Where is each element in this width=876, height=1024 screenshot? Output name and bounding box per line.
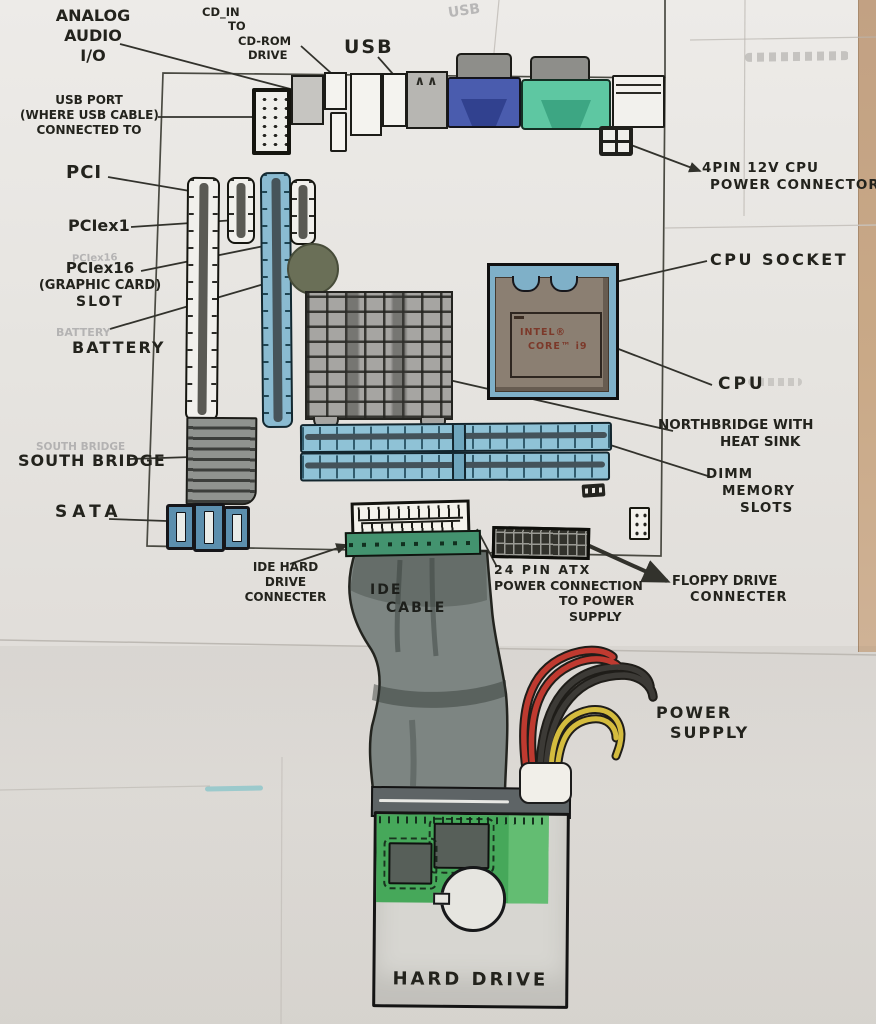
teal-port-inner	[541, 100, 591, 128]
ghost-text: BATTERY	[56, 326, 111, 339]
label-atx-power: 24 PIN ATX POWER CONNECTION TO POWER SUP…	[494, 562, 643, 625]
label-line: PCIex1	[68, 216, 130, 236]
label-line: IDE HARD	[238, 560, 333, 575]
4pin-cell	[618, 130, 630, 140]
hdd-power-connector	[519, 762, 572, 804]
sata-port-1	[166, 504, 195, 550]
label-line: CPU	[718, 374, 766, 395]
cpu-socket: INTEL® CORE™ i9	[487, 263, 619, 400]
label-line: SOUTH BRIDGE	[18, 451, 166, 471]
hdd-pcb-light-strip	[508, 815, 549, 903]
label-line: I/O	[38, 46, 148, 66]
crease-left-bottom	[0, 786, 210, 790]
vga-port-inner	[461, 99, 507, 126]
hand-drawn-motherboard-diagram: ∧∧ INTEL®	[0, 0, 876, 1024]
crease-right-2	[690, 37, 876, 40]
leader-pci	[108, 177, 190, 191]
ghost-text: SOUTH BRIDGE	[36, 441, 125, 453]
usb-stack-port: ∧∧	[406, 71, 448, 129]
leader-cd-in	[301, 46, 331, 73]
label-line: CONNECTER	[238, 590, 333, 605]
label-line: HEAT SINK	[658, 434, 813, 451]
hdd-cache-chip	[388, 842, 432, 884]
io-port-white	[612, 75, 665, 128]
pciex16-slot	[260, 172, 293, 428]
ghost-battery: BATTERY	[56, 326, 111, 339]
label-line: (GRAPHIC CARD)	[30, 278, 170, 294]
leader-cpu-power	[631, 145, 700, 171]
hdd-bar-highlight	[379, 799, 509, 803]
io-port-a	[350, 73, 382, 136]
label-line: DRIVE	[238, 575, 333, 590]
vga-port	[447, 77, 521, 128]
slot-bar	[234, 179, 248, 242]
label-line: CONNECTED TO	[20, 123, 158, 138]
hdd-spindle-notch	[433, 893, 450, 905]
ghost-pciex16: PCIex16	[72, 252, 118, 265]
label-line: POWER CONNECTOR	[702, 177, 876, 194]
front-panel-header	[629, 507, 650, 540]
label-line: SATA	[55, 502, 123, 523]
io-port-b	[382, 73, 407, 127]
label-line: POWER CONNECTION	[494, 578, 643, 594]
hard-drive: HARD DRIVE	[372, 811, 570, 1009]
label-line: USB	[344, 36, 394, 60]
label-line: FLOPPY DRIVE	[672, 574, 788, 590]
cpu-power-4pin-connector	[599, 126, 633, 156]
4pin-cell	[603, 130, 615, 140]
label-line: CPU SOCKET	[710, 250, 848, 270]
label-line: AUDIO	[38, 26, 148, 46]
label-line: USB PORT	[20, 93, 158, 108]
label-line: CONNECTER	[672, 590, 788, 606]
slot-bar	[192, 179, 213, 419]
jumper-connector	[582, 483, 606, 498]
label-northbridge: NORTHBRIDGE WITH HEAT SINK	[658, 417, 813, 451]
label-line: IDE	[370, 582, 446, 600]
label-line: PCI	[66, 162, 102, 185]
label-usb: USB	[344, 36, 394, 60]
label-line: MEMORY	[706, 483, 795, 500]
power-wires	[524, 650, 653, 773]
cpu-marking-line2: CORE™ i9	[520, 340, 588, 354]
teal-port	[521, 79, 611, 130]
label-line: ANALOG	[38, 6, 148, 26]
label-cpu: CPU	[718, 374, 766, 395]
cpu-die-mark	[514, 316, 524, 319]
io-notch	[330, 112, 347, 152]
io-port-white-line2	[616, 92, 661, 94]
crease-right-1	[665, 225, 876, 228]
label-power-supply: POWER SUPPLY	[656, 703, 749, 743]
dimm-slot-2	[300, 451, 610, 481]
hard-drive-label: HARD DRIVE	[375, 968, 565, 992]
short-slot-2	[290, 179, 316, 245]
label-analog-audio: ANALOG AUDIO I/O	[38, 6, 148, 66]
label-line: 4PIN 12V CPU	[702, 160, 876, 177]
label-line: SUPPLY	[656, 723, 749, 743]
jumper-pins	[585, 487, 602, 493]
label-pci: PCI	[66, 162, 102, 185]
label-floppy: FLOPPY DRIVE CONNECTER	[672, 574, 788, 607]
cpu-die-outline: INTEL® CORE™ i9	[510, 312, 602, 378]
label-line: BATTERY	[72, 338, 166, 358]
hard-drive-text: HARD DRIVE	[375, 968, 565, 992]
slot-bar	[297, 181, 309, 243]
label-line: NORTHBRIDGE WITH	[658, 417, 813, 434]
ribbon-streak-3	[412, 720, 414, 786]
ghost-southbridge: SOUTH BRIDGE	[36, 441, 125, 453]
atx-24pin-connector	[492, 526, 591, 560]
ghost-text: PCIex16	[72, 252, 118, 265]
label-line: CD_IN	[202, 5, 291, 19]
label-cpu-socket: CPU SOCKET	[710, 250, 848, 270]
label-ide-connector: IDE HARD DRIVE CONNECTER	[238, 560, 333, 605]
leader-pciex1	[131, 220, 236, 227]
label-line: TO POWER	[494, 593, 643, 609]
label-usb-port: USB PORT (WHERE USB CABLE) CONNECTED TO	[20, 93, 158, 138]
dimm-divider	[452, 425, 466, 450]
slot-ticks	[309, 181, 314, 243]
label-line: CABLE	[370, 600, 446, 618]
cd-in-port	[324, 72, 347, 110]
label-dimm: DIMM MEMORY SLOTS	[706, 466, 795, 517]
dimm-slot-1	[300, 422, 612, 453]
slot-bar	[267, 174, 286, 426]
label-battery: BATTERY	[72, 338, 166, 358]
label-line: TO	[202, 19, 291, 33]
ide-socket-strip	[345, 530, 481, 557]
label-ide-cable: IDE CABLE	[370, 582, 446, 617]
label-pciex1: PCIex1	[68, 216, 130, 236]
ide-pin-row-1	[358, 505, 463, 522]
sata-port-2	[193, 503, 225, 552]
crease-bottom-vertical	[281, 757, 282, 1024]
label-line: POWER	[656, 703, 749, 723]
label-line: SLOTS	[706, 500, 795, 517]
southbridge-chip	[186, 417, 258, 506]
label-cd-in: CD_IN TO CD-ROM DRIVE	[202, 5, 291, 63]
sata-port-3	[223, 506, 250, 550]
usb-pin-header	[252, 88, 291, 155]
dimm-divider	[452, 454, 466, 479]
label-cpu-power: 4PIN 12V CPU POWER CONNECTOR	[702, 160, 876, 194]
label-southbridge: SOUTH BRIDGE	[18, 451, 166, 471]
cpu-die-text: INTEL® CORE™ i9	[520, 326, 588, 355]
pci-slot	[185, 177, 220, 421]
label-line: SLOT	[30, 294, 170, 312]
4pin-cell	[603, 143, 615, 153]
label-line: (WHERE USB CABLE)	[20, 108, 158, 123]
label-sata: SATA	[55, 502, 123, 523]
cpu-marking-line1: INTEL®	[520, 327, 566, 338]
label-line: CD-ROM	[202, 34, 291, 48]
label-pciex16: PCIex16 (GRAPHIC CARD) SLOT	[30, 259, 170, 312]
audio-port	[291, 75, 324, 125]
io-port-white-line1	[616, 84, 661, 86]
label-line: 24 PIN ATX	[494, 562, 643, 578]
label-line: SUPPLY	[494, 609, 643, 625]
northbridge-heatsink	[305, 291, 453, 420]
pciex1-slot	[227, 177, 255, 244]
ide-socket-dashes	[349, 541, 477, 547]
label-line: DIMM	[706, 466, 795, 483]
hdd-controller-chip	[433, 823, 489, 869]
slot-ticks	[248, 179, 253, 242]
4pin-cell	[618, 143, 630, 153]
label-line: DRIVE	[202, 48, 291, 62]
cmos-battery	[287, 243, 339, 295]
